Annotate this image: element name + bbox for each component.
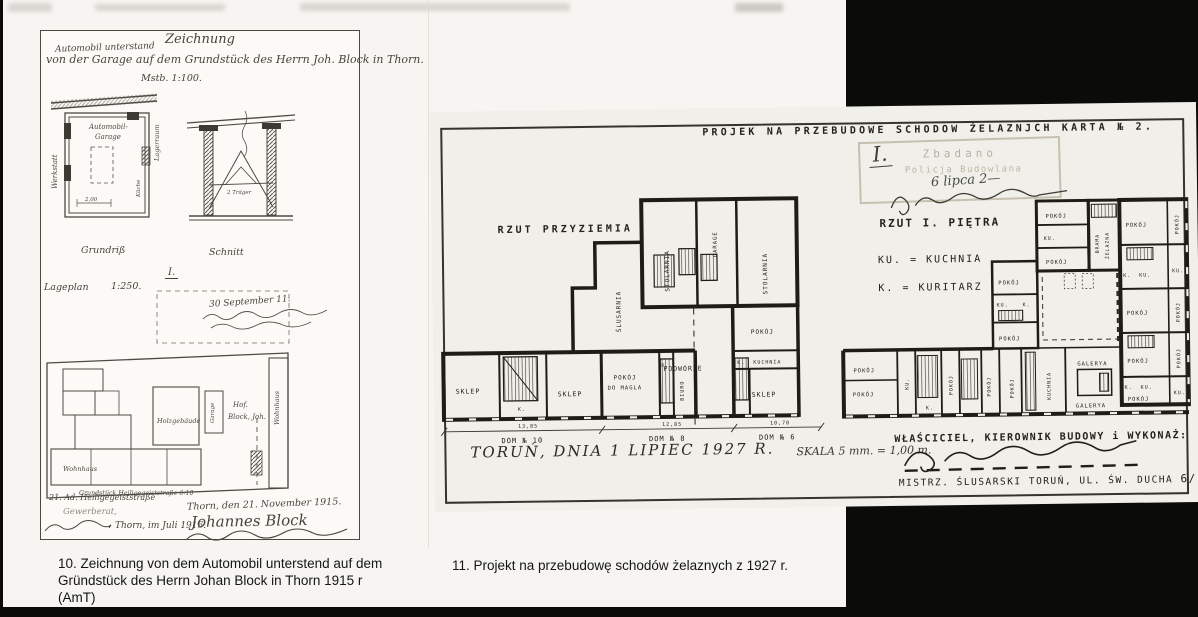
ff-pokoj-h: POKÓJ <box>1175 302 1182 322</box>
room-label-sklep-1: SKLEP <box>456 387 481 395</box>
room-label-garage: GARAGE <box>713 231 719 257</box>
address-note: 21. Ad. Heiligegeiststraße <box>49 493 155 502</box>
site-garage-label: Garage <box>210 402 216 423</box>
ff-pokoj-j: POKÓJ <box>1175 348 1182 368</box>
ff-pokoj-f: POKÓJ <box>1173 214 1180 234</box>
photocopy-edge-line <box>428 0 429 548</box>
scan-smudge <box>735 3 783 12</box>
ff-ku-a: KU. <box>997 302 1009 308</box>
room-label-k-2: K. <box>518 407 526 413</box>
ff-ku-b: KU. <box>1044 236 1056 242</box>
room-label-pokoj: POKÓJ <box>751 329 774 336</box>
kueche-label: Küche <box>136 179 142 198</box>
hof-owner-label: Block, Joh. <box>227 413 266 421</box>
ff-pokoj-k: POKÓJ <box>1128 396 1150 403</box>
doc10-subtitle: von der Garage auf dem Grundstück des He… <box>46 53 424 66</box>
ff-ku-d: KU. <box>1172 268 1184 274</box>
scanned-book-spread: Zeichnung Automobil unterstand von der G… <box>0 0 1198 617</box>
hof-label: Hof. <box>232 401 248 409</box>
official-signature-squiggle <box>43 519 113 537</box>
site-plan-drawing: Holzgebäude Garage Hof. Block, Joh. Wohn… <box>45 283 295 508</box>
grundriss-label: Grundriß <box>81 245 125 256</box>
ff-ku-e: KU. <box>1141 385 1153 391</box>
schnitt-label: Schnitt <box>209 247 244 258</box>
garage-plan-and-section-drawing: ​ 2,00 Automobil- Garage Werkstatt Lager… <box>49 89 299 244</box>
ff-pokoj-p: POKÓJ <box>1009 378 1016 398</box>
johannes-block-signature: Johannes Block <box>191 511 308 531</box>
house-number-fraction: 6/10 <box>1180 472 1198 485</box>
ff-pokoj-b: POKÓJ <box>999 335 1021 342</box>
room-label-do-magla: DO MAGLA <box>608 385 643 391</box>
ff-ku-f: KU. <box>1174 390 1186 396</box>
room-label-k-3: K. <box>661 363 669 369</box>
dim-value-8: 12,85 <box>662 422 682 428</box>
ff-ku-g: KU. <box>905 378 911 390</box>
ff-pokoj-e: POKÓJ <box>1125 222 1147 229</box>
werkstatt-label: Werkstatt <box>51 154 59 189</box>
caption-figure-11: 11. Projekt na przebudowę schodów żelazn… <box>452 557 842 574</box>
garage-room-label-2: Garage <box>95 133 121 141</box>
room-label-sklep: SKLEP <box>752 390 777 398</box>
document-10-drawing-1915: Zeichnung Automobil unterstand von der G… <box>40 30 360 540</box>
room-label-stolarnia-2: STOLARNIA <box>762 253 770 295</box>
ff-k-b: K. <box>1123 273 1131 279</box>
lagerraum-label: Lagerraum <box>153 124 161 162</box>
garage-room-label-1: Automobil- <box>88 123 128 131</box>
first-floor-plan-drawing: POKÓJ KU. K. POKÓJ POKÓJ KU. POKÓJ BRAMA… <box>835 180 1190 423</box>
dim-200-label: 2,00 <box>84 197 98 203</box>
document-11-sheet-1927: PROJEK NA PRZEBUDOWE SCHODOW ŻELAZNJCH K… <box>430 102 1198 512</box>
dim-value-6: 10,70 <box>770 420 790 426</box>
ff-pokoj-o: POKÓJ <box>986 377 993 397</box>
wohnhaus-bottom-label: Wohnhaus <box>63 465 98 473</box>
wohnhaus-right-label: Wohnhaus <box>273 390 281 425</box>
ff-brama-1: BRAMA <box>1095 234 1101 254</box>
caption-10-line-2: Gründstück des Herrn Johan Block in Thor… <box>58 572 388 606</box>
stamp-line-1: Zbadano <box>923 147 998 161</box>
caption-10-line-1: 10. Zeichnung von dem Automobil unterste… <box>58 555 388 572</box>
holzgebaeude-label: Holzgebäude <box>156 417 200 425</box>
ff-k-a: K. <box>1023 302 1031 308</box>
ff-brama-2: ŻELAZNA <box>1104 232 1111 259</box>
signature-flourish <box>185 529 350 545</box>
ff-pokoj-m: POKÓJ <box>853 391 875 398</box>
scan-smudge <box>8 3 52 12</box>
ff-galerya-2: GALERYA <box>1076 403 1106 409</box>
ground-floor-plan-drawing: STOLARNIA GARAGE STOLARNIA ŚLUSARNIA POD… <box>439 191 834 448</box>
scan-smudge <box>95 4 225 11</box>
dim-value-10: 13,85 <box>518 424 538 430</box>
doc10-scale: Mstb. 1:100. <box>141 73 202 84</box>
caption-figure-10: 10. Zeichnung von dem Automobil unterste… <box>58 555 388 606</box>
ff-ku-c: KU. <box>1139 273 1151 279</box>
ff-pokoj-c: POKÓJ <box>1045 213 1067 220</box>
ff-pokoj-d: POKÓJ <box>1046 259 1068 266</box>
ff-kuchnia-vertical: KUCHNIA <box>1046 372 1052 400</box>
room-label-kuchnia: KUCHNIA <box>753 359 781 365</box>
illegible-annotation-squiggle <box>242 111 247 157</box>
ff-galerya-1: GALERYA <box>1077 361 1107 367</box>
traeger-label: 2 Träger <box>226 190 252 196</box>
scan-smudge <box>300 3 570 11</box>
owner-signature-squiggle <box>898 441 1148 474</box>
stamp-roman-numeral: I. <box>868 141 893 168</box>
ff-k-c: K. <box>1125 385 1133 391</box>
room-label-pokoj-magla: POKÓJ <box>613 374 636 381</box>
room-label-sklep-2: SKLEP <box>558 390 583 398</box>
room-label-biuro: BIURO <box>680 381 686 401</box>
ff-pokoj-i: POKÓJ <box>1127 358 1149 365</box>
roman-one-label: I. <box>165 267 178 279</box>
ff-pokoj-n: POKÓJ <box>947 375 954 395</box>
gewerberat-note: Gewerberat, <box>63 507 117 517</box>
ff-k-d: K. <box>926 405 934 411</box>
ff-pokoj-a: POKÓJ <box>998 279 1020 286</box>
room-label-slusarnia: ŚLUSARNIA <box>615 291 623 333</box>
ff-pokoj-g: POKÓJ <box>1127 310 1149 317</box>
ff-pokoj-l: POKÓJ <box>853 367 875 374</box>
